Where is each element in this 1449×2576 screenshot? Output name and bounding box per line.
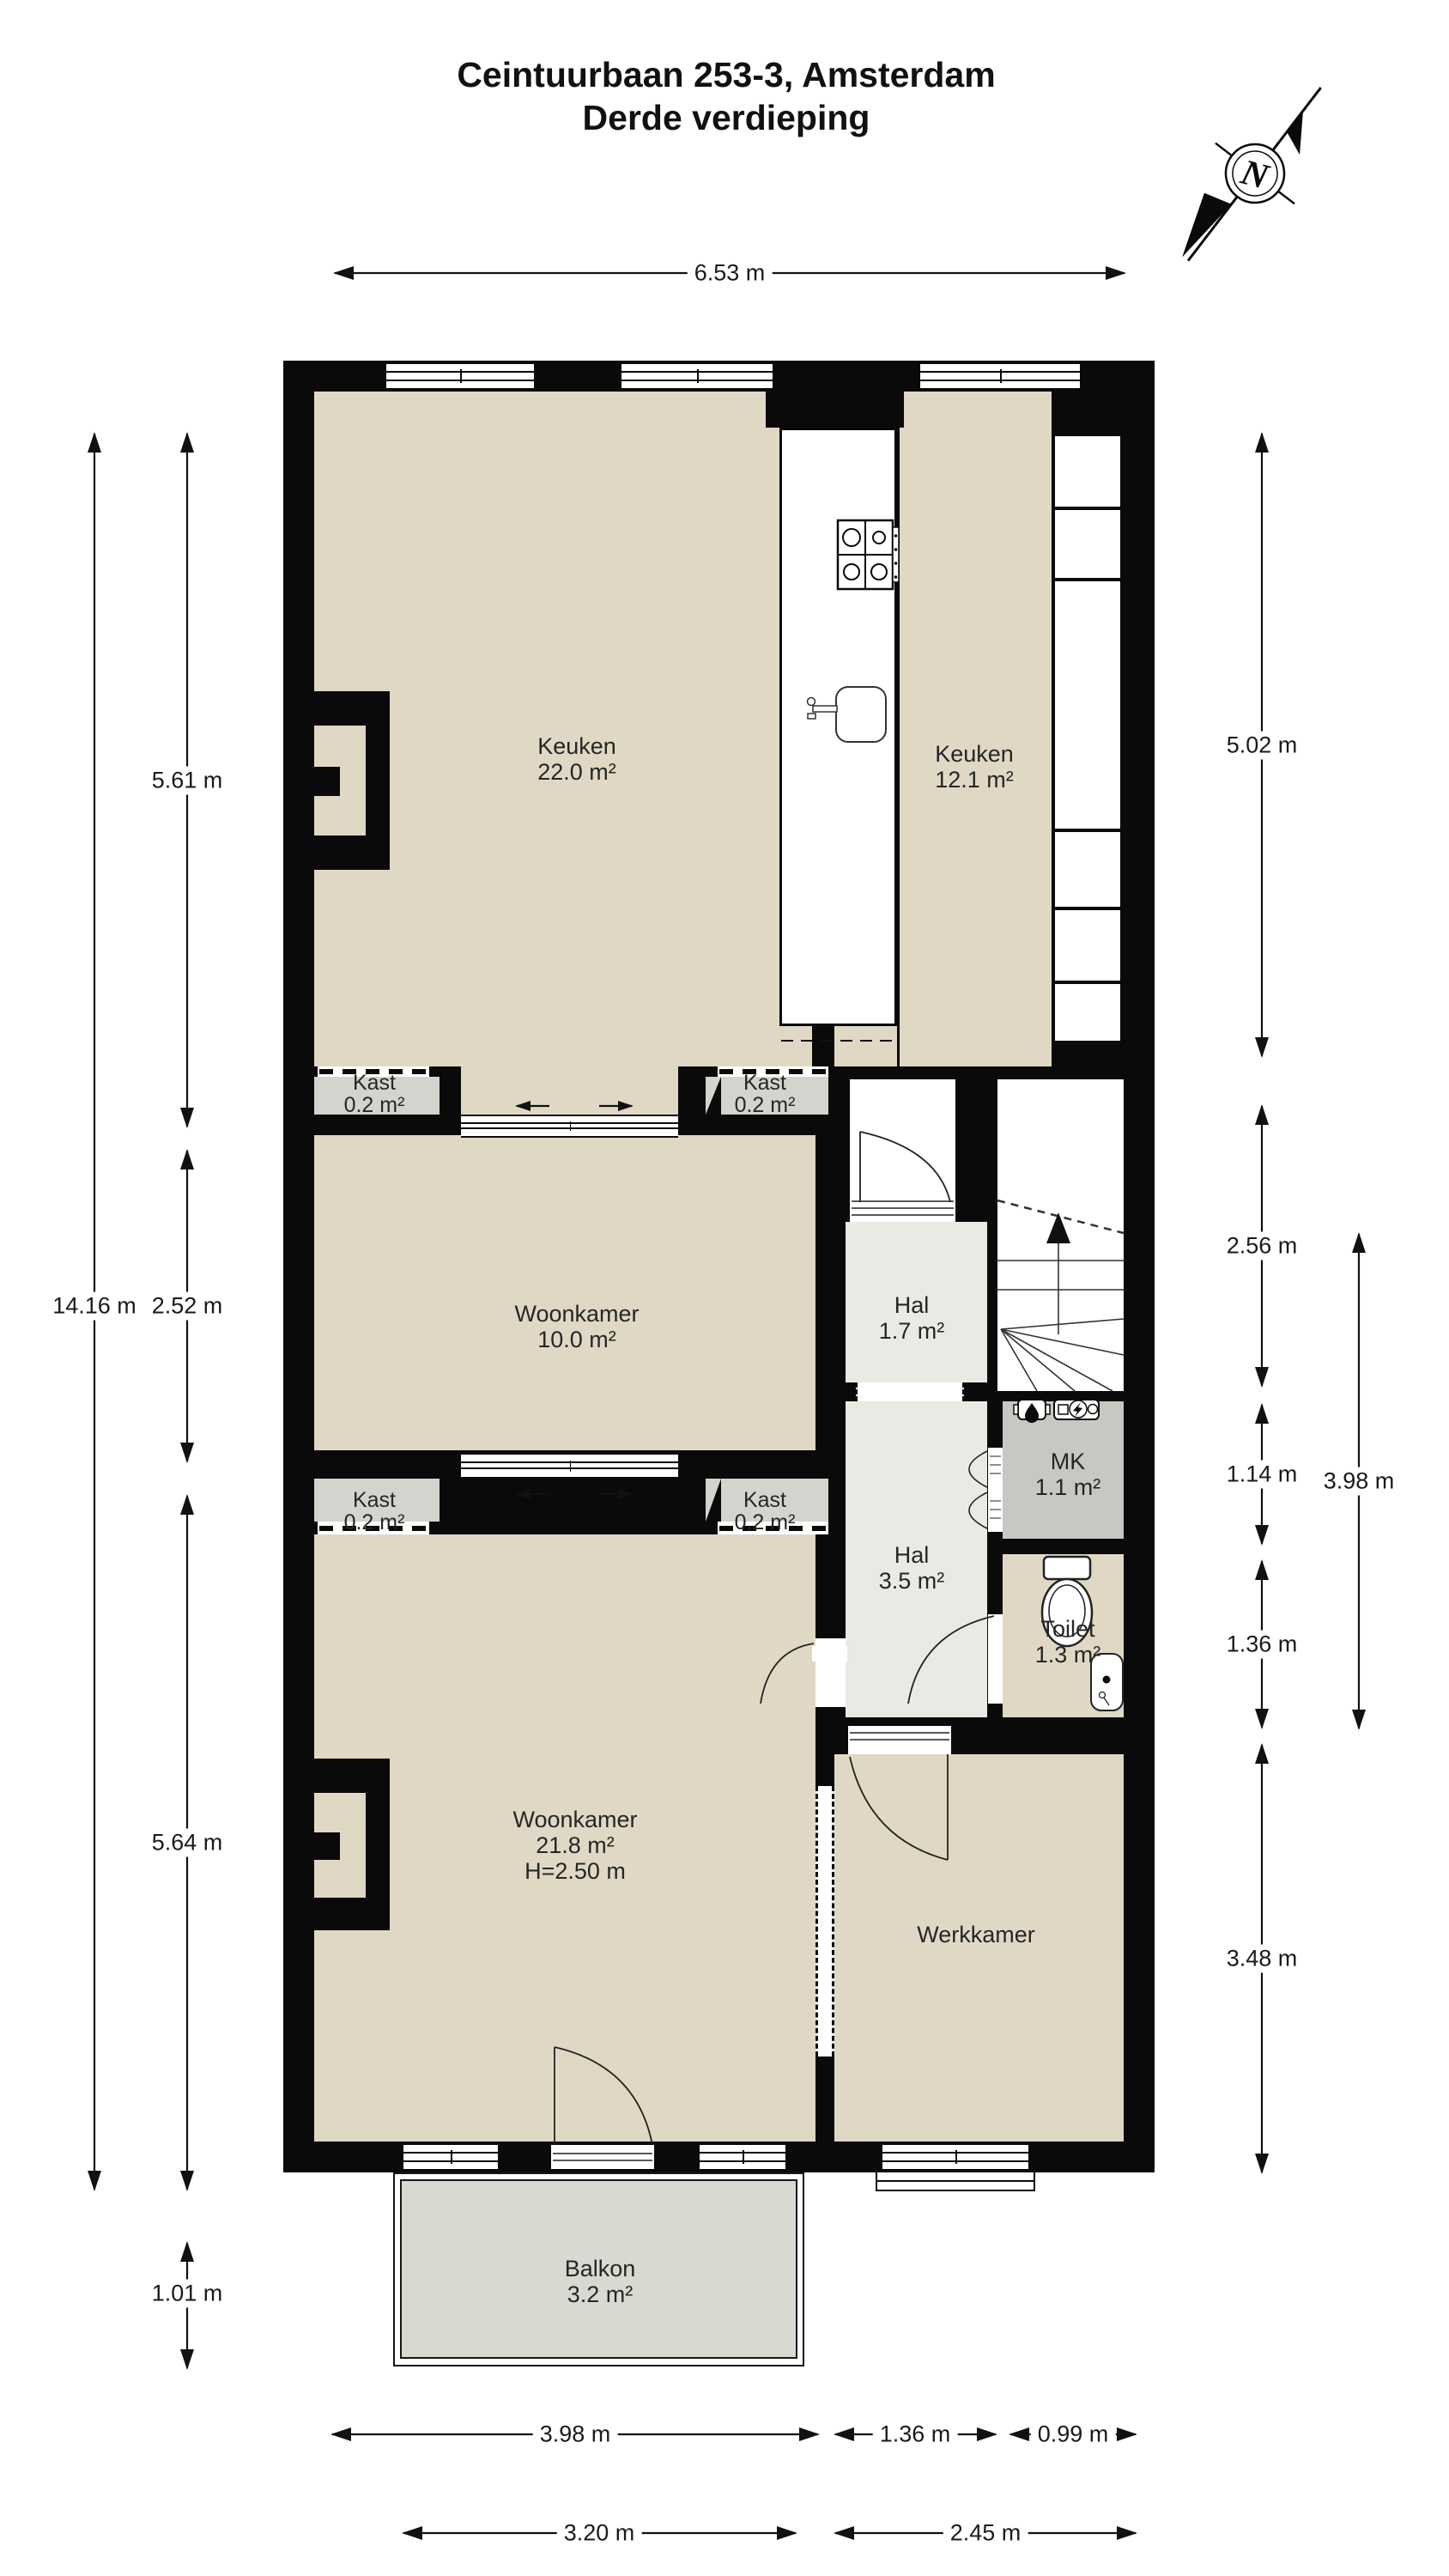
dim-bottom-hal: 1.36 m [873, 2421, 958, 2449]
dim-bottom-woonkamer: 3.98 m [533, 2421, 618, 2449]
dim-left-balkon: 1.01 m [145, 2280, 230, 2308]
kitchen-cabinet [1053, 830, 1122, 908]
dim-bottom-werkkamer: 2.45 m [943, 2519, 1028, 2548]
kitchen-counter [779, 428, 897, 1026]
dim-left-woonkamer-klein: 2.52 m [145, 1292, 230, 1321]
keuken-passage-wall-stub [812, 1026, 834, 1066]
keuken-passage-floor [779, 1026, 897, 1066]
dim-left-keuken: 5.61 m [145, 767, 230, 795]
room-label-hal-klein: Hal1.7 m² [879, 1292, 945, 1344]
kitchen-cabinet [1053, 908, 1122, 982]
window-keuken-groot-left [386, 364, 534, 388]
werkkamer-floor [834, 1754, 1124, 2142]
dim-right-keuken: 5.02 m [1220, 732, 1305, 760]
toilet-door-opening [988, 1614, 1003, 1704]
balkon-door-niche [551, 2145, 654, 2169]
dim-left-woonkamer-groot: 5.64 m [145, 1829, 230, 1857]
open-wall-woonkamer-werkkamer [815, 1786, 834, 2057]
entrance-door-niche [850, 1079, 955, 1222]
room-label-kast-2: Kast0.2 m² [735, 1072, 796, 1116]
compass-icon: N [1148, 58, 1360, 292]
room-label-kast-3: Kast0.2 m² [344, 1489, 405, 1534]
room-label-mk: MK1.1 m² [1035, 1449, 1101, 1500]
room-label-balkon: Balkon3.2 m² [565, 2256, 636, 2307]
keuken-klein-floor [900, 392, 1052, 1066]
compass-north-label: N [1236, 153, 1274, 198]
window-woonkamer-left [403, 2145, 498, 2169]
sliding-door-keuken-woonkamer[interactable] [461, 1115, 678, 1138]
room-label-hal-groot: Hal3.5 m² [879, 1542, 945, 1594]
room-label-kast-1: Kast0.2 m² [344, 1072, 405, 1116]
dim-right-mk: 1.14 m [1220, 1461, 1305, 1489]
dim-top-width: 6.53 m [688, 259, 773, 288]
stairwell [997, 1079, 1124, 1391]
kitchen-cabinet [1053, 580, 1122, 830]
window-werkkamer-sill [876, 2171, 1035, 2191]
hal-passage [856, 1382, 964, 1401]
kitchen-cabinet [1053, 508, 1122, 580]
floor-subtitle: Derde verdieping [457, 96, 995, 139]
dim-right-hal: 2.56 m [1220, 1232, 1305, 1261]
keuken-groot-floor-ext [461, 1066, 678, 1115]
window-woonkamer-right [700, 2145, 785, 2169]
hal-woonkamer-door-leaf [812, 1646, 847, 1662]
woonkamer-klein-floor [314, 1135, 815, 1450]
room-label-keuken-groot: Keuken22.0 m² [537, 733, 616, 785]
mk-door-opening [988, 1448, 1003, 1532]
counter-head-wall [766, 392, 904, 428]
room-label-toilet: Toilet1.3 m² [1035, 1616, 1101, 1668]
floorplan-page: Ceintuurbaan 253-3, Amsterdam Derde verd… [0, 0, 1449, 2576]
room-label-kast-4: Kast0.2 m² [735, 1489, 796, 1534]
room-label-woonkamer-klein: Woonkamer10.0 m² [514, 1301, 639, 1352]
room-label-werkkamer: Werkkamer [917, 1922, 1035, 1947]
dim-right-outer: 3.98 m [1317, 1467, 1402, 1496]
page-title: Ceintuurbaan 253-3, Amsterdam Derde verd… [457, 53, 995, 139]
window-keuken-groot-right [621, 364, 773, 388]
kitchen-cabinet [1053, 434, 1122, 508]
dim-bottom-balkon: 3.20 m [557, 2519, 642, 2548]
address-title: Ceintuurbaan 253-3, Amsterdam [457, 53, 995, 96]
kitchen-cabinet [1053, 982, 1122, 1042]
room-label-woonkamer-groot: Woonkamer 21.8 m² H=2.50 m [512, 1807, 637, 1884]
chimney-woonkamer-tab [314, 1832, 340, 1860]
dim-left-total: 14.16 m [45, 1292, 143, 1321]
sliding-door-woonkamers[interactable] [461, 1453, 678, 1479]
dim-right-toilet: 1.36 m [1220, 1631, 1305, 1659]
chimney-keuken-tab [314, 767, 340, 796]
window-keuken-klein [920, 364, 1080, 388]
dim-right-werkkamer: 3.48 m [1220, 1945, 1305, 1973]
window-werkkamer [882, 2145, 1028, 2169]
room-label-keuken-klein: Keuken12.1 m² [935, 741, 1014, 793]
dim-bottom-toilet: 0.99 m [1031, 2421, 1116, 2449]
werkkamer-door-niche [848, 1726, 951, 1754]
